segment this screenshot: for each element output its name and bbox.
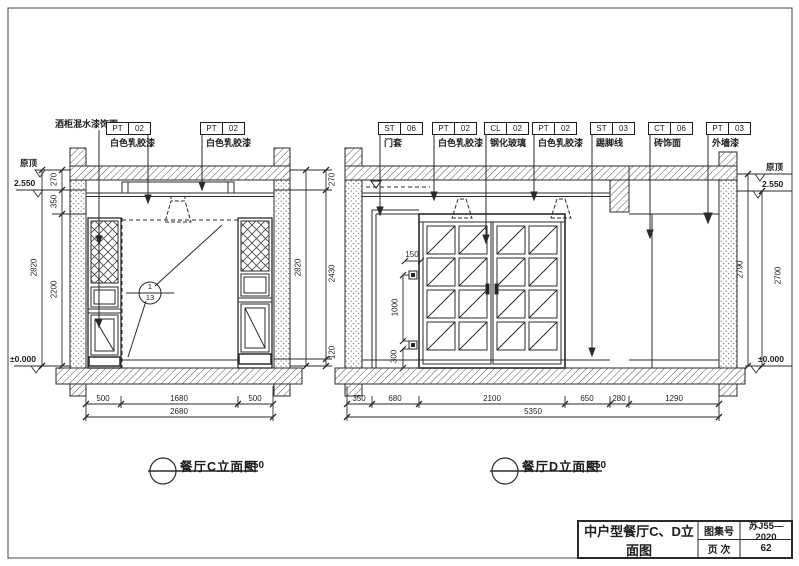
dim: 270	[329, 161, 338, 197]
tag-num: 02	[223, 123, 244, 134]
material-tag: PT02	[106, 122, 151, 135]
cad-linework	[0, 0, 799, 566]
door-handle	[495, 284, 498, 294]
tag-code: CL	[485, 123, 507, 134]
dim: 2200	[51, 271, 60, 307]
dim: 680	[375, 395, 415, 404]
tag-desc: 白色乳胶漆	[538, 136, 583, 149]
caption-scale-c: 1:50	[244, 460, 264, 471]
level-label: ±0.000	[10, 355, 36, 364]
dim: 500	[83, 395, 123, 404]
drawing-sheet: 酒柜混水漆饰面 PT02 白色乳胶漆 PT02 白色乳胶漆 原顶 2.550 ±…	[0, 0, 799, 566]
material-tag: PT02	[532, 122, 577, 135]
material-tag: PT02	[200, 122, 245, 135]
detail-ref-num: 1	[140, 283, 160, 291]
level-label: 原顶	[766, 163, 783, 172]
tag-code: PT	[433, 123, 455, 134]
tag-num: 06	[671, 123, 692, 134]
dim: 150	[398, 251, 426, 260]
wine-cabinet-left	[88, 218, 121, 368]
sheet-border	[8, 8, 792, 558]
tag-num: 02	[129, 123, 150, 134]
tag-num: 03	[613, 123, 634, 134]
tag-num: 02	[455, 123, 476, 134]
detail-ref-sheet: 13	[140, 294, 160, 302]
tag-desc: 钢化玻璃	[490, 136, 526, 149]
level-label: 2.550	[14, 179, 35, 188]
atlas-label: 图集号	[698, 521, 740, 539]
tag-desc: 外墙漆	[712, 136, 739, 149]
dim-total: 2820	[31, 249, 40, 285]
dim: 1000	[392, 289, 401, 325]
material-tag: CL02	[484, 122, 529, 135]
tag-code: PT	[533, 123, 555, 134]
dim: 350	[339, 395, 379, 404]
material-tag: PT03	[706, 122, 751, 135]
tag-code: PT	[707, 123, 729, 134]
tag-num: 02	[507, 123, 528, 134]
tag-desc: 踢脚线	[596, 136, 623, 149]
material-tag: CT06	[648, 122, 693, 135]
dim: 1290	[654, 395, 694, 404]
dim: 2100	[472, 395, 512, 404]
level-label: 2.550	[762, 180, 783, 189]
material-tag: ST06	[378, 122, 423, 135]
tag-desc: 砖饰面	[654, 136, 681, 149]
wine-cabinet-right	[238, 218, 272, 368]
tag-code: ST	[379, 123, 401, 134]
material-tag: ST03	[590, 122, 635, 135]
dim-total: 2790	[737, 251, 746, 287]
dim: 120	[329, 334, 338, 370]
dim: 500	[235, 395, 275, 404]
tag-code: PT	[201, 123, 223, 134]
dim-total: 2700	[775, 257, 784, 293]
tag-num: 03	[729, 123, 750, 134]
dim: 280	[604, 395, 634, 404]
dim: 350	[51, 183, 60, 219]
tag-num: 02	[555, 123, 576, 134]
drawing-title: 中户型餐厅C、D立面图	[580, 521, 698, 558]
tag-code: CT	[649, 123, 671, 134]
tag-code: PT	[107, 123, 129, 134]
level-label: 原顶	[20, 159, 37, 168]
dim-total: 2820	[295, 249, 304, 285]
door-handle	[486, 284, 489, 294]
tag-desc: 白色乳胶漆	[438, 136, 483, 149]
tag-num: 06	[401, 123, 422, 134]
balcony-opening	[629, 214, 719, 368]
page-number: 62	[740, 539, 792, 558]
dim-total: 2680	[159, 408, 199, 417]
tag-desc: 门套	[384, 136, 402, 149]
dim: 2430	[329, 255, 338, 291]
sockets	[400, 258, 424, 371]
dim-total: 5350	[513, 408, 553, 417]
level-label: ±0.000	[758, 355, 784, 364]
tag-desc: 白色乳胶漆	[206, 136, 251, 149]
dim: 650	[572, 395, 602, 404]
glass-door	[419, 214, 565, 368]
dim: 1680	[159, 395, 199, 404]
caption-scale-d: 1:50	[586, 460, 606, 471]
material-tag: PT02	[432, 122, 477, 135]
tag-code: ST	[591, 123, 613, 134]
page-label: 页 次	[698, 539, 740, 558]
tag-desc: 白色乳胶漆	[110, 136, 155, 149]
dim: 300	[391, 338, 400, 374]
atlas-number: 苏J55—2020	[740, 521, 792, 539]
